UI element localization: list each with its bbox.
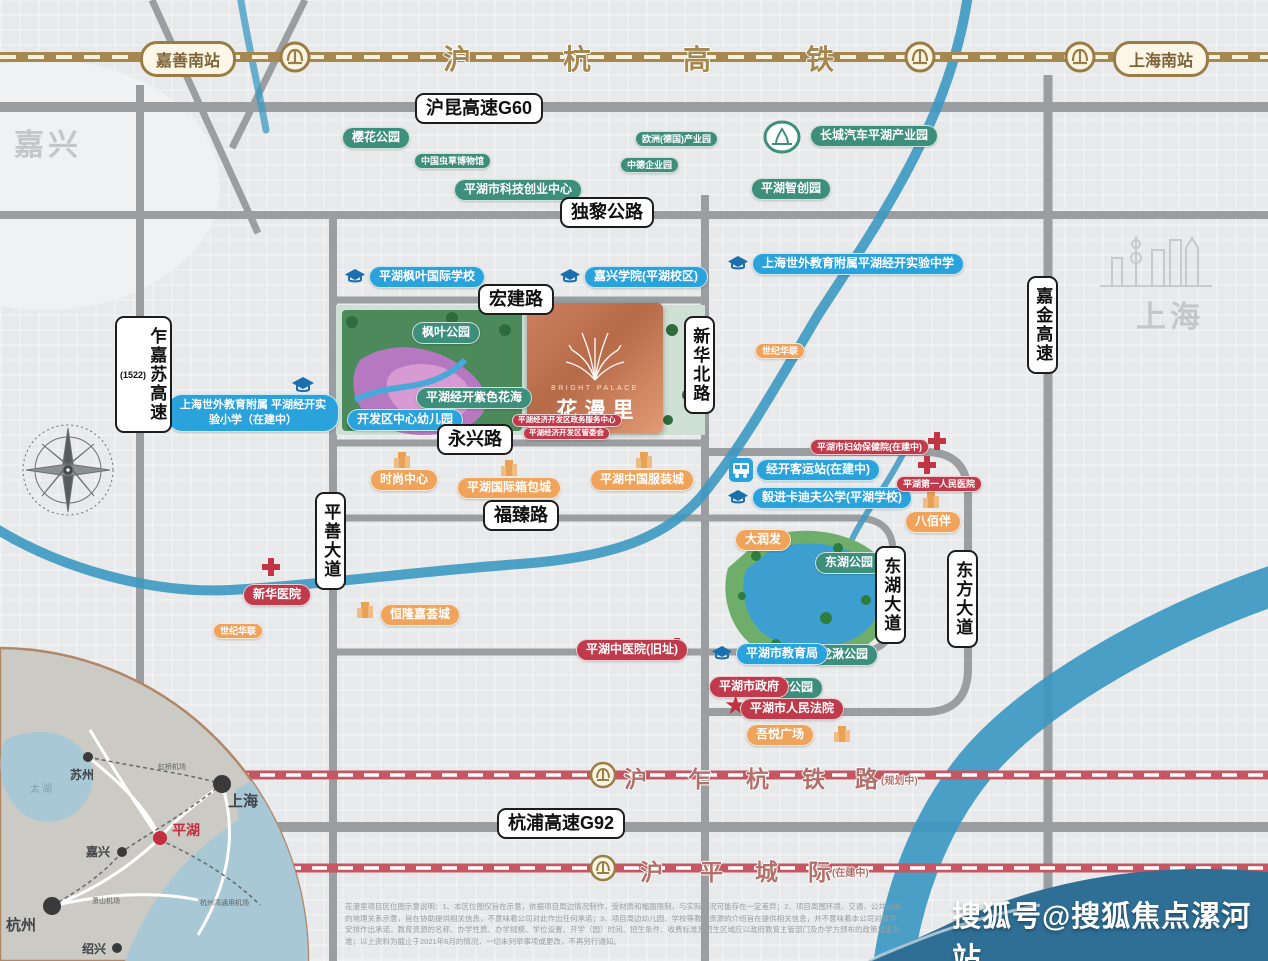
sohu-watermark: 搜狐号@搜狐焦点漯河站: [952, 893, 1268, 961]
inset-airport-hongqiao: 虹桥机场: [158, 762, 186, 772]
rail-char: 平: [700, 853, 723, 887]
building-icon: [356, 600, 374, 620]
graduation-cap-icon: [559, 268, 581, 284]
inset-city-hangzhou: 杭州: [6, 914, 36, 935]
inset-city-jiaxing: 嘉兴: [86, 843, 110, 860]
roadsign-yongxing: 永兴路: [437, 424, 513, 455]
region-label-jiaxing: 嘉兴: [14, 120, 82, 164]
rail-char: 乍: [688, 760, 711, 794]
poi-city-government: 平湖市政府: [709, 676, 789, 698]
rail-char: 沪: [624, 760, 647, 794]
poi-shiji-hualian-west: 世纪华联: [213, 623, 263, 639]
inset-map: [0, 648, 335, 961]
inset-city-shanghai: 上海: [228, 790, 258, 811]
building-icon: [635, 450, 653, 470]
poi-chongcao-museum: 中国虫草博物馆: [414, 153, 491, 169]
roadsign-g92: 杭浦高速G92: [497, 808, 625, 839]
building-icon: [393, 450, 411, 470]
project-name-en: BRIGHT PALACE: [551, 385, 639, 392]
roadsign-pingshan: 平善大道: [315, 492, 346, 590]
inset-city-suzhou: 苏州: [70, 766, 94, 783]
poi-babaiban: 八佰伴: [905, 511, 961, 533]
poi-donghu-park: 东湖公园: [815, 552, 883, 574]
building-icon: [922, 490, 940, 510]
poi-henglong-mall: 恒隆嘉荟城: [380, 604, 460, 626]
poi-fengye-park: 枫叶公园: [412, 322, 480, 344]
roadsign-fuzhen: 福臻路: [483, 500, 559, 531]
poi-jiaxing-college: 嘉兴学院(平湖校区): [584, 266, 708, 288]
roadsign-g60: 沪昆高速G60: [415, 93, 543, 124]
inset-city-pinghu: 平湖: [172, 820, 200, 840]
rail-char: 路: [855, 760, 878, 794]
poi-luggage-city: 平湖国际箱包城: [457, 477, 561, 499]
poi-xinhua-hospital: 新华医院: [243, 584, 311, 606]
rail-char: 杭: [746, 760, 769, 794]
bus-icon: [729, 458, 753, 482]
rail-char: 沪: [443, 38, 471, 78]
poi-darunfa: 大润发: [735, 529, 791, 551]
poi-zhongde-park: 中德企业园: [620, 157, 679, 173]
rail-status: (规划中): [881, 772, 918, 787]
medical-cross-icon: [262, 558, 280, 576]
roadsign-duli: 独黎公路: [560, 197, 654, 228]
graduation-cap-icon: [727, 255, 749, 271]
inset-lake-taihu: 太湖: [30, 780, 54, 795]
graduation-cap-icon: [344, 268, 366, 284]
poi-yinghua-park: 樱花公园: [342, 127, 410, 149]
poi-zhichuang-park: 平湖智创园: [751, 178, 831, 200]
poi-tcm-hospital: 平湖中医院(旧址): [576, 639, 688, 661]
poi-shiwai-middle-school: 上海世外教育附属平湖经开实验中学: [752, 253, 964, 275]
poi-wuyue-plaza: 吾悦广场: [746, 724, 814, 746]
poi-cardiff-school: 毅进卡迪夫公学(平湖学校): [752, 487, 912, 509]
poi-gwm-industrial-park: 长城汽车平湖产业园: [810, 125, 938, 147]
rail-status: (在建中): [832, 864, 869, 879]
region-label-shanghai: 上海: [1136, 292, 1204, 336]
poi-shiji-hualian-east: 世纪华联: [755, 343, 805, 359]
poi-admin-service-center: 平湖经济开发区政务服务中心: [512, 414, 622, 427]
poi-maternity-hospital: 平湖市妇幼保健院(在建中): [810, 439, 929, 455]
inset-airport-xiaoshan: 萧山机场: [92, 896, 120, 906]
roadsign-xinhuabei: 新华北路: [684, 316, 715, 414]
rail-char: 铁: [802, 760, 825, 794]
inset-city-shaoxing: 绍兴: [82, 940, 106, 957]
station-shanghai-south: 上海南站: [1113, 41, 1209, 77]
shanghai-skyline-sketch: [1100, 236, 1212, 286]
project-emblem-icon: [560, 330, 630, 382]
graduation-cap-icon: [727, 489, 749, 505]
poi-ouzhou-park: 欧洲(德国)产业园: [635, 131, 718, 147]
station-jiashan-south: 嘉善南站: [140, 41, 236, 77]
poi-garment-city: 平湖中国服装城: [590, 469, 694, 491]
rail-char: 铁: [806, 38, 834, 78]
medical-cross-icon: [918, 456, 936, 474]
rail-char: 城: [755, 853, 778, 887]
compass-icon: [23, 425, 113, 515]
poi-fashion-center: 时尚中心: [370, 469, 438, 491]
poi-education-bureau: 平湖市教育局: [736, 643, 828, 665]
building-icon: [500, 458, 518, 478]
roadsign-dongfang-ave: 东方大道: [947, 550, 978, 648]
building-icon: [833, 724, 851, 744]
roadsign-donghu-ave: 东湖大道: [875, 546, 906, 644]
poi-shiwai-primary-school: 上海世外教育附属 平湖经开实验小学（在建中）: [167, 394, 339, 432]
gwm-logo-icon: [765, 122, 799, 152]
disclaimer-text: 花漫里项目区位图示意说明：1、本区位图仅旨在示意，依据项目周边情况制作，受材质和…: [345, 901, 901, 948]
graduation-cap-icon: [291, 376, 315, 394]
inset-airport-tongyong: 杭州湾通用机场: [200, 898, 249, 908]
roadsign-zhajiasu: 乍嘉苏高速 (1522): [115, 316, 172, 433]
medical-cross-icon: [928, 432, 946, 450]
poi-fengye-school: 平湖枫叶国际学校: [369, 266, 485, 288]
roadsign-jiajin: 嘉金高速: [1027, 276, 1058, 374]
rail-char: 高: [683, 38, 711, 78]
graduation-cap-icon: [711, 645, 733, 661]
background-highlight: [0, 60, 220, 310]
poi-first-peoples-hospital: 平湖第一人民医院: [896, 476, 982, 492]
location-map: 嘉兴 上海 嘉善南站 上海南站 沪 杭 高 铁 沪昆高速G60 独黎公路 宏建路…: [0, 0, 1268, 961]
poi-purple-flower-sea: 平湖经开紫色花海: [416, 387, 532, 409]
poi-keji-center: 平湖市科技创业中心: [454, 179, 582, 201]
rail-char: 杭: [563, 38, 591, 78]
poi-peoples-court: 平湖市人民法院: [740, 698, 844, 720]
rail-char: 沪: [640, 853, 663, 887]
inset-pinghu-dot: [153, 831, 167, 845]
poi-management-committee: 平湖经济开发区管委会: [523, 427, 610, 440]
rail-char: 际: [808, 853, 831, 887]
roadsign-hongjian: 宏建路: [478, 284, 554, 315]
roadsign-zhajiasu-code: (1522): [120, 370, 146, 381]
poi-bus-terminal: 经开客运站(在建中): [756, 459, 880, 481]
